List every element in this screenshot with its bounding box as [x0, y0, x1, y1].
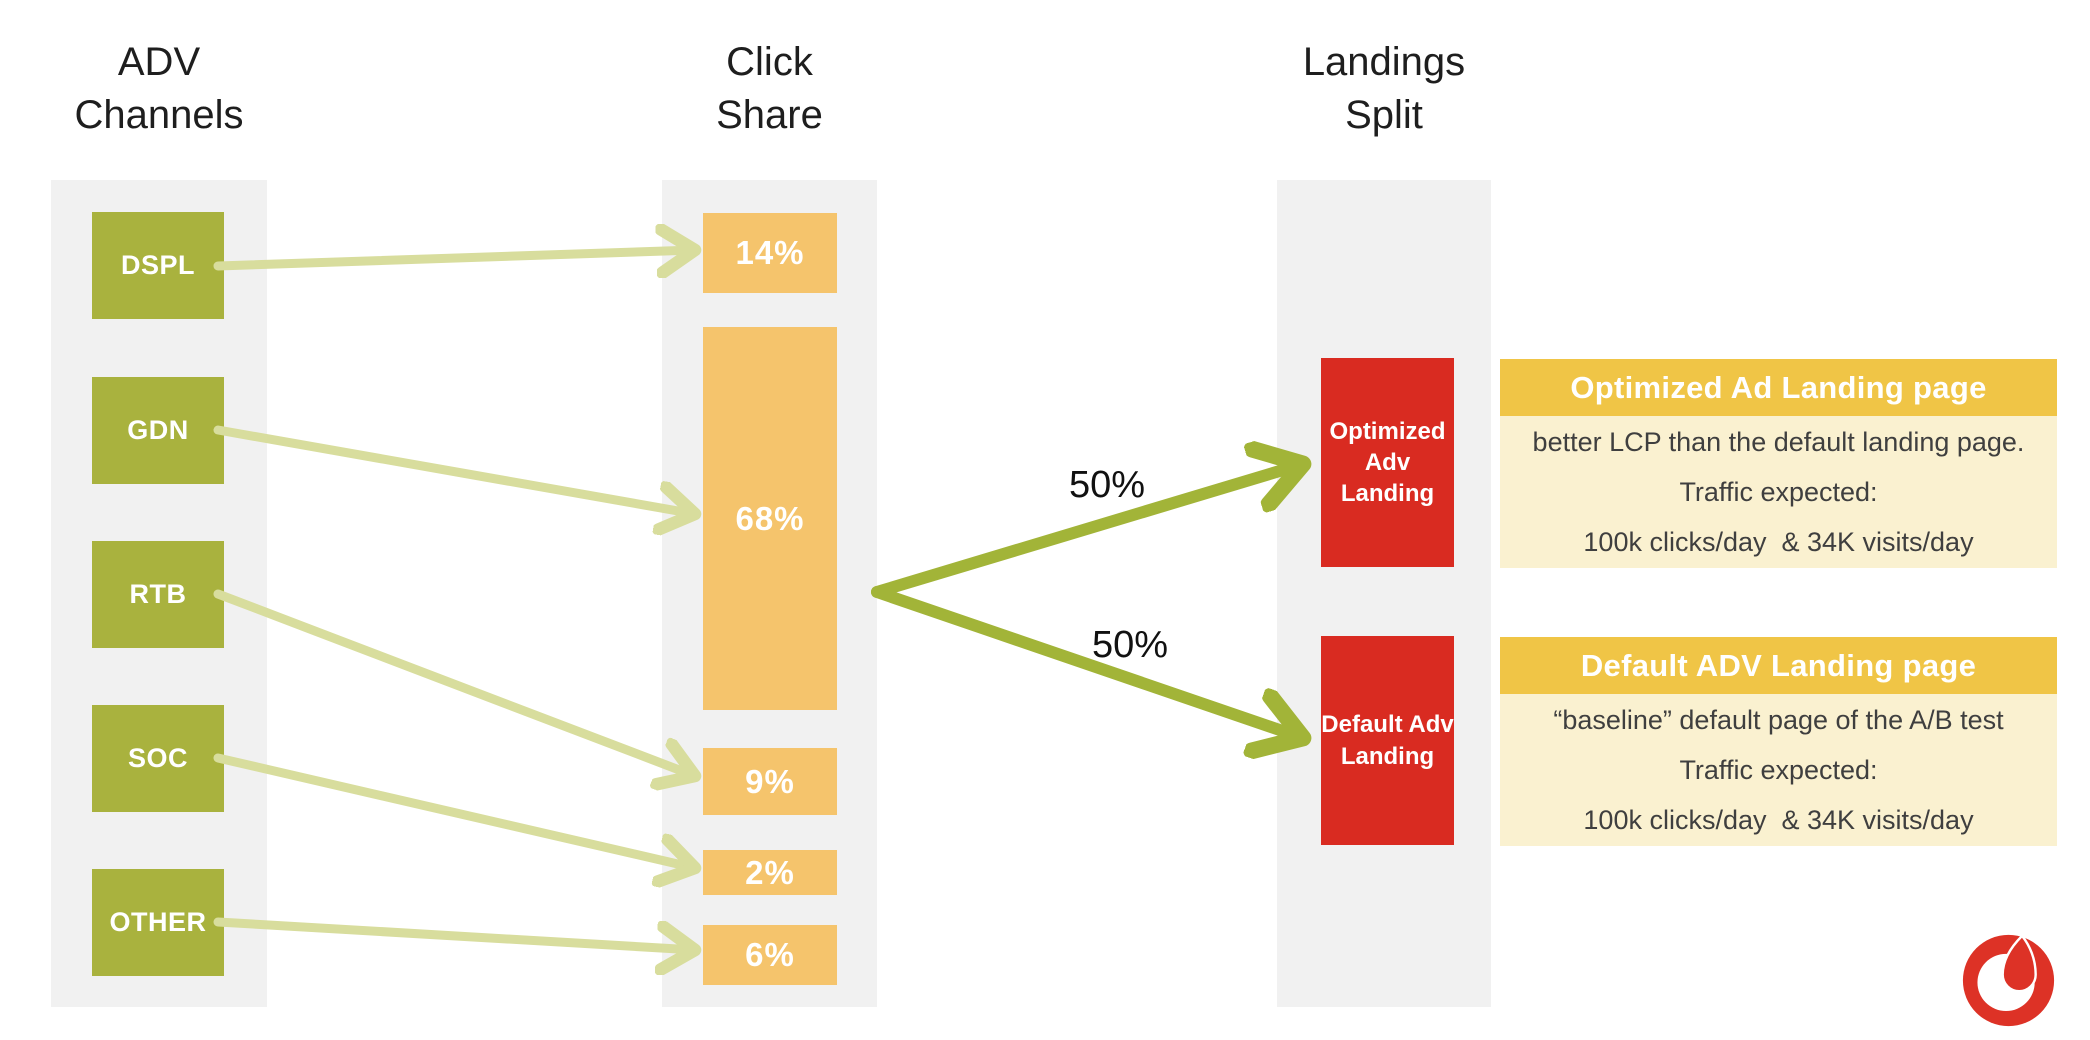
share-box-9: 9% — [703, 748, 837, 815]
channel-box-gdn: GDN — [92, 377, 224, 484]
card-text-line: 100k clicks/day & 34K visits/day — [1500, 795, 2057, 845]
vodafone-logo — [1960, 932, 2057, 1029]
share-box-68: 68% — [703, 327, 837, 710]
card-title: Default ADV Landing page — [1500, 637, 2057, 694]
arrow-other-to-6 — [218, 922, 695, 950]
split-label-top: 50% — [1037, 464, 1177, 507]
card-text-line: Traffic expected: — [1500, 745, 2057, 795]
arrow-rtb-to-9 — [218, 594, 695, 776]
arrow-dspl-to-14 — [218, 250, 695, 266]
channel-box-dspl: DSPL — [92, 212, 224, 319]
channel-box-other: OTHER — [92, 869, 224, 976]
split-label-bottom: 50% — [1060, 624, 1200, 667]
card-body: better LCP than the default landing page… — [1500, 416, 2057, 568]
column-title-adv-channels: ADV Channels — [51, 36, 267, 142]
card-text-line: better LCP than the default landing page… — [1500, 417, 2057, 467]
arrow-gdn-to-68 — [218, 430, 695, 514]
card-text-line: 100k clicks/day & 34K visits/day — [1500, 517, 2057, 567]
arrow-soc-to-2 — [218, 758, 695, 868]
channel-box-soc: SOC — [92, 705, 224, 812]
card-text-line: “baseline” default page of the A/B test — [1500, 695, 2057, 745]
share-box-6: 6% — [703, 925, 837, 985]
share-box-14: 14% — [703, 213, 837, 293]
landing-box-optimized: Optimized Adv Landing — [1321, 358, 1454, 567]
column-title-landings-split: Landings Split — [1277, 36, 1491, 142]
card-body: “baseline” default page of the A/B test … — [1500, 694, 2057, 846]
share-box-2: 2% — [703, 850, 837, 895]
channel-box-rtb: RTB — [92, 541, 224, 648]
card-optimized-landing: Optimized Ad Landing page better LCP tha… — [1500, 359, 2057, 568]
card-title: Optimized Ad Landing page — [1500, 359, 2057, 416]
column-title-click-share: Click Share — [662, 36, 877, 142]
landings-band — [1277, 180, 1491, 1007]
card-text-line: Traffic expected: — [1500, 467, 2057, 517]
slide-canvas: ADV Channels Click Share Landings Split … — [0, 0, 2090, 1040]
card-default-landing: Default ADV Landing page “baseline” defa… — [1500, 637, 2057, 846]
landing-box-default: Default Adv Landing — [1321, 636, 1454, 845]
